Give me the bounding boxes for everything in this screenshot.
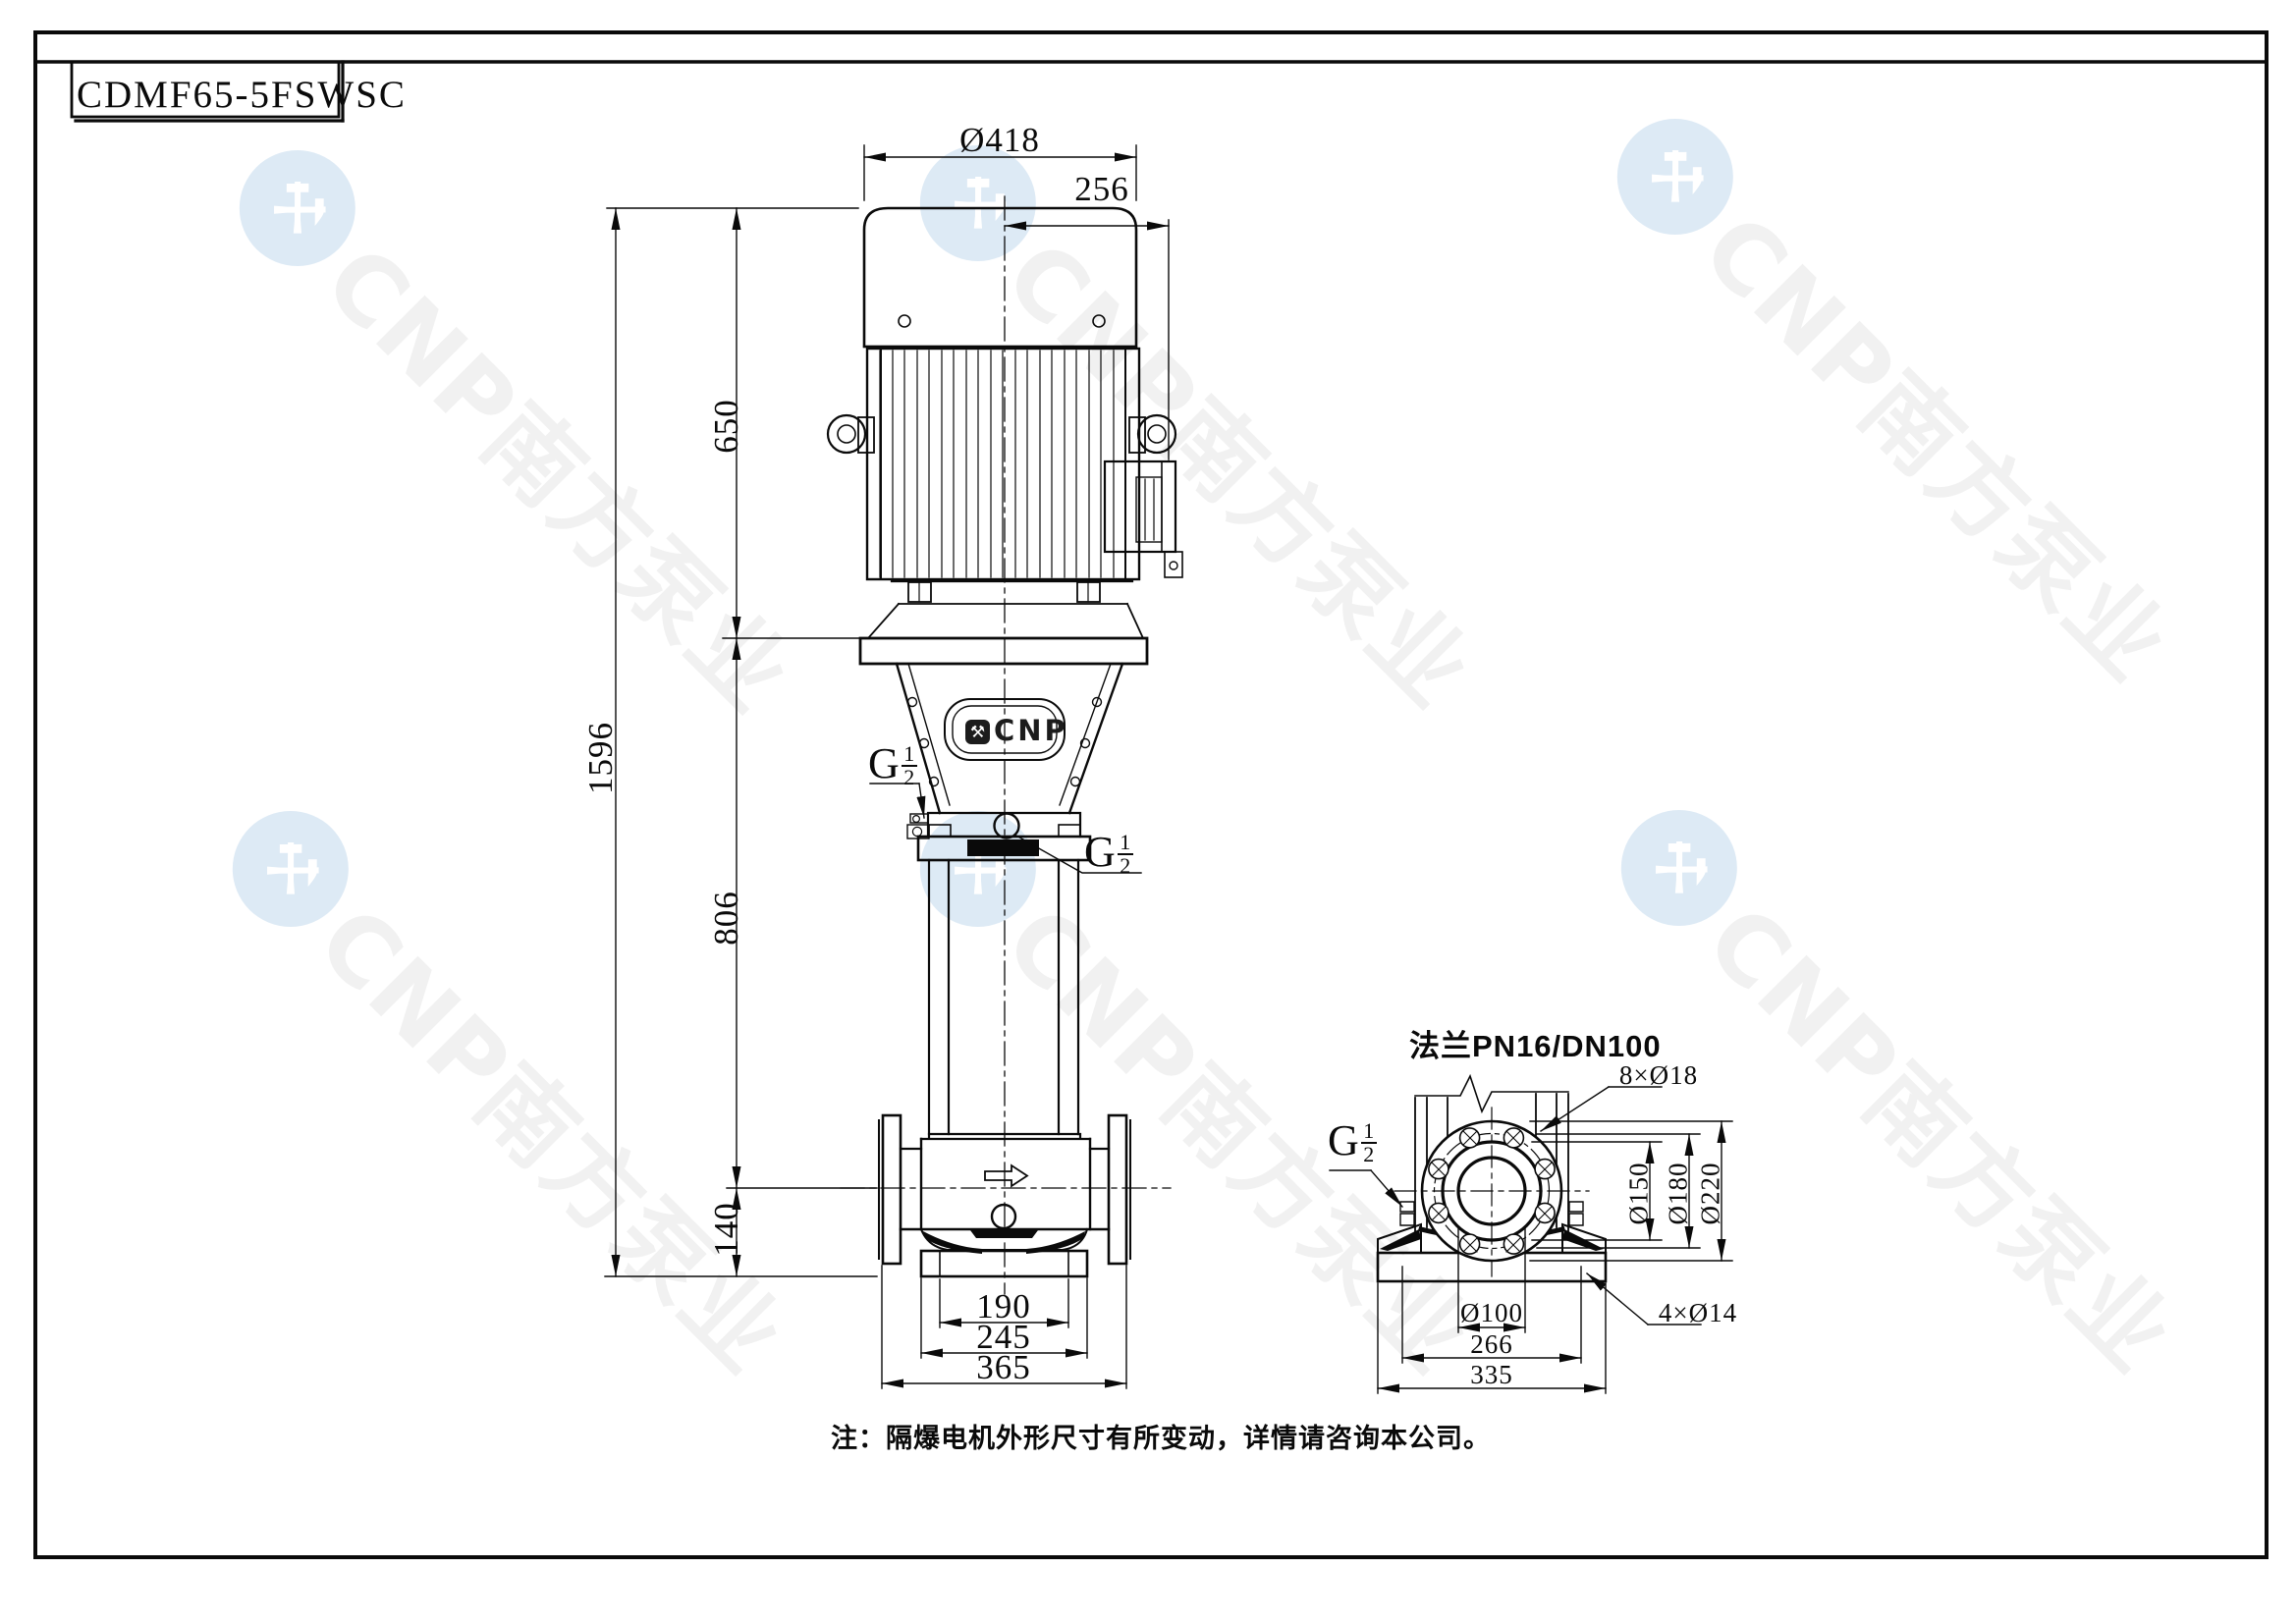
gauge-port-fitting <box>907 814 929 839</box>
dim-total-height: 1596 <box>581 709 621 807</box>
drawing-note: 注：隔爆电机外形尺寸有所变动，详情请咨询本公司。 <box>831 1417 1491 1455</box>
sheet-frame <box>35 32 2267 1557</box>
dim-base-holes: 4×Ø14 <box>1644 1298 1752 1328</box>
brand-plate-name: CNP <box>994 714 1068 747</box>
flange-detail-view <box>1378 1076 1606 1281</box>
dim-fan-cover-dia: Ø418 <box>926 121 1073 160</box>
dim-bolt-circle: Ø180 <box>1664 1145 1694 1243</box>
thread-label-g-half: G 12 <box>1084 833 1133 876</box>
dim-raised-face: Ø150 <box>1624 1145 1655 1243</box>
dim-pump-height: 806 <box>707 869 746 967</box>
drawing-linework <box>0 0 2296 1623</box>
dim-bolt-holes: 8×Ø18 <box>1605 1060 1713 1091</box>
junction-box <box>1105 461 1182 577</box>
thread-label-g-half: G 12 <box>1328 1121 1377 1164</box>
drawing-sheet: ⚒ CNP南方泵业 ⚒ CNP南方泵业 ⚒ CNP南方泵业 ⚒ CNP南方泵业 … <box>0 0 2296 1623</box>
dim-flange-base-outer: 335 <box>1456 1360 1527 1390</box>
dim-box-offset: 256 <box>1038 170 1166 209</box>
dim-flange-base-mid: 266 <box>1456 1329 1527 1360</box>
dim-motor-height: 650 <box>707 377 746 475</box>
hammer-icon: ⚒ <box>965 720 990 744</box>
gauge-port-fitting <box>1400 1202 1414 1225</box>
dim-bore: Ø100 <box>1456 1298 1527 1328</box>
dim-base-outer: 365 <box>940 1348 1067 1387</box>
dim-port-center-height: 140 <box>707 1180 746 1278</box>
title-block-model: CDMF65-5FSWSC <box>77 73 334 117</box>
flow-arrow-icon <box>985 1165 1027 1186</box>
thread-label-g-half: G 12 <box>868 744 917 787</box>
dim-outer-dia: Ø220 <box>1696 1145 1726 1243</box>
flange-detail-title: 法兰PN16/DN100 <box>1409 1021 1662 1065</box>
